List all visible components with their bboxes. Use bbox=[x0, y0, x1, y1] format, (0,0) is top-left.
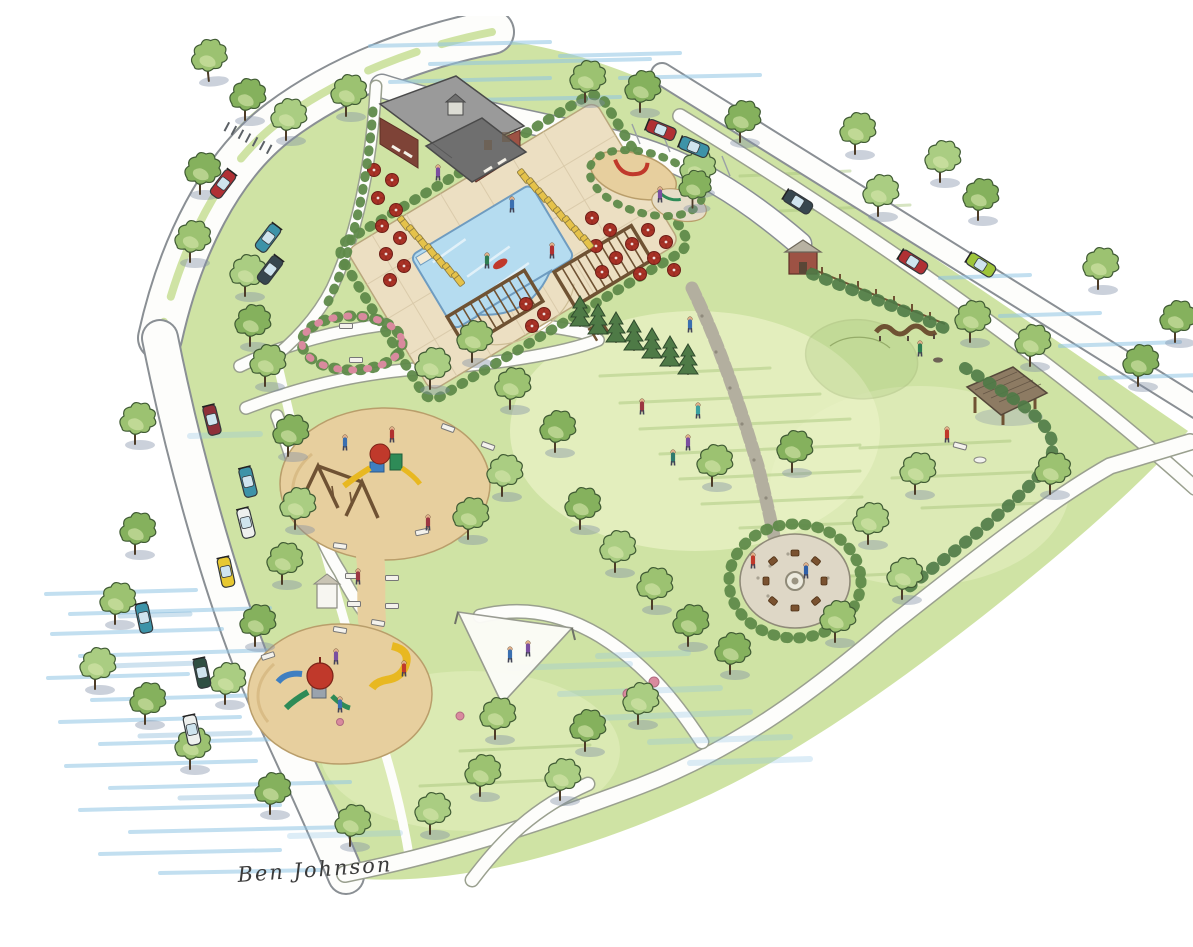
cupola bbox=[448, 102, 463, 115]
rose-garden-bench bbox=[340, 324, 353, 329]
car bbox=[193, 657, 212, 689]
signature-text: Ben Johnson bbox=[236, 852, 393, 887]
park-plan-canvas: Ben Johnson bbox=[40, 16, 1193, 931]
car bbox=[135, 602, 154, 634]
artist-signature: Ben Johnson bbox=[236, 852, 393, 887]
rose-garden-bench bbox=[350, 358, 363, 363]
park-plan-illustration: Ben Johnson bbox=[40, 16, 1193, 931]
dog bbox=[974, 457, 986, 463]
dog bbox=[933, 357, 943, 362]
